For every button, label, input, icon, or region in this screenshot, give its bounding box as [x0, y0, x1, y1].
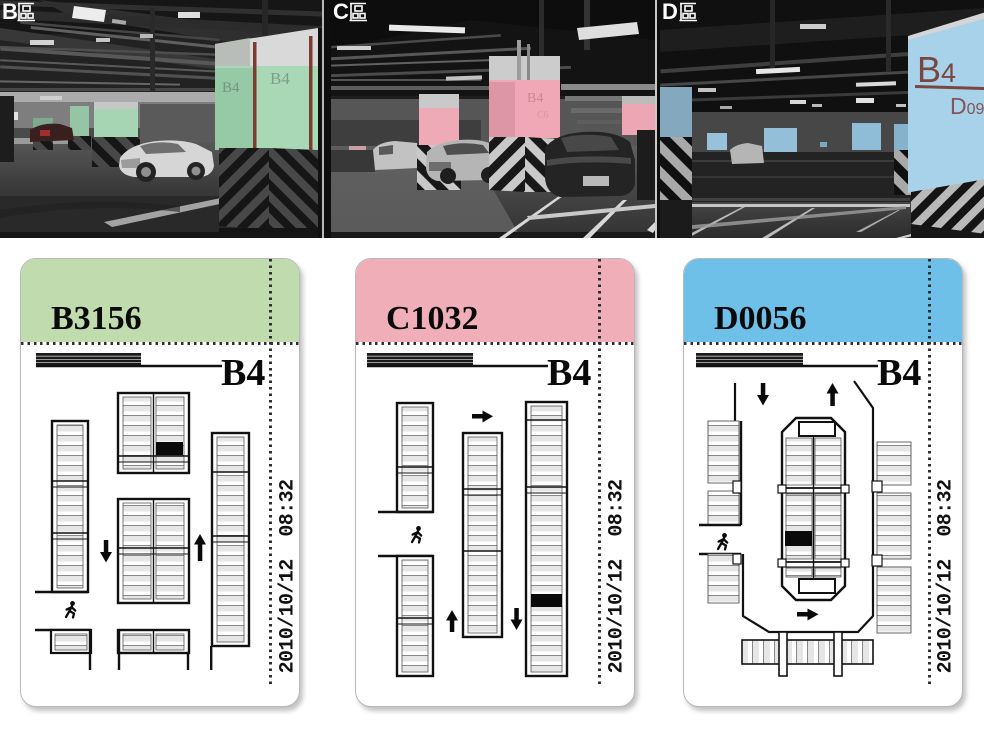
svg-text:B: B [2, 0, 18, 24]
svg-text:C6: C6 [537, 110, 549, 121]
svg-text:C: C [333, 0, 349, 24]
svg-text:B4: B4 [222, 80, 240, 96]
svg-text:B4: B4 [877, 352, 921, 394]
svg-text:B4: B4 [527, 91, 543, 106]
svg-text:B4: B4 [270, 69, 290, 88]
svg-text:B4: B4 [221, 352, 265, 394]
svg-text:B4: B4 [547, 352, 591, 394]
svg-text:D: D [662, 0, 678, 24]
